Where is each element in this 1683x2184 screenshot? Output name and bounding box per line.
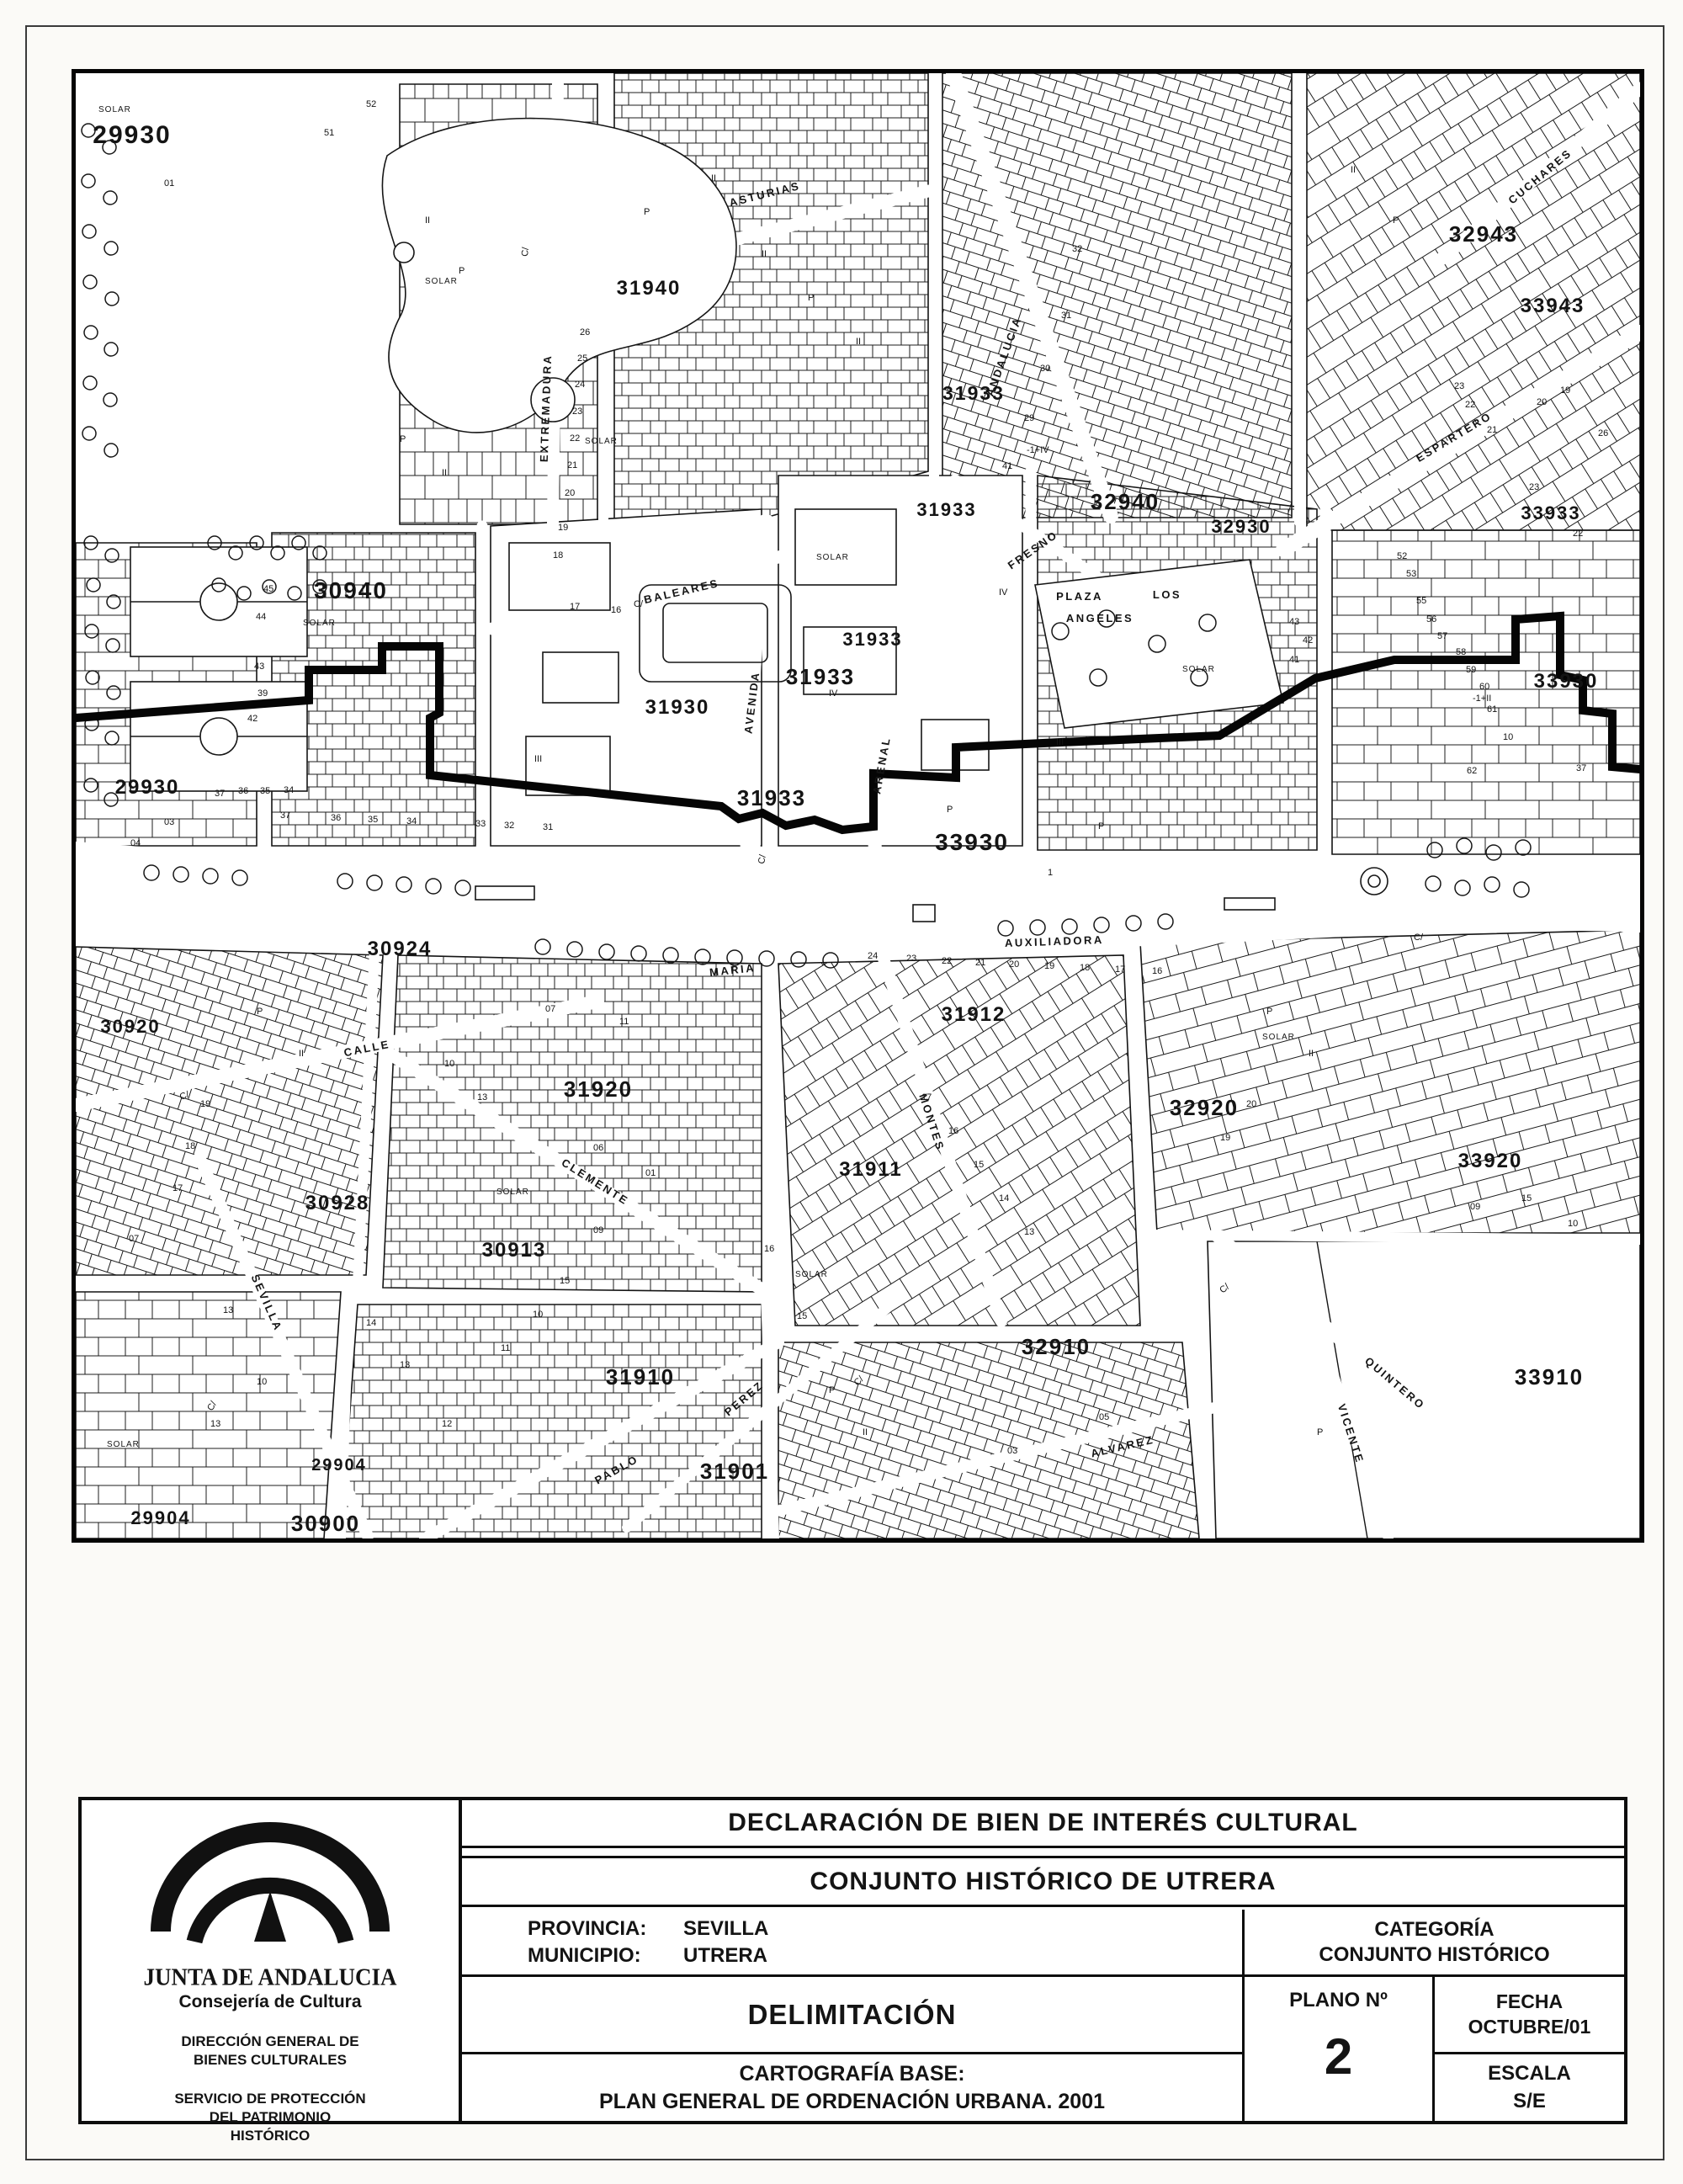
fecha-label: FECHA	[1496, 1990, 1563, 2015]
parcel-number: 31	[1061, 311, 1071, 321]
parcel-number: III	[1056, 737, 1064, 747]
parcel-number: 07	[129, 1234, 139, 1244]
delimitacion-cell: DELIMITACIÓN	[462, 1977, 1245, 2054]
street-name: LOS	[1153, 588, 1181, 601]
org-name: JUNTA DE ANDALUCIA	[82, 1963, 459, 1991]
parcel-number: 11	[619, 1017, 629, 1027]
parcel-number: 19	[1560, 385, 1570, 396]
scanned-map-sheet: 3736353433323139454443423736353403045152…	[0, 0, 1683, 2184]
parcel-number: 26	[1598, 428, 1608, 438]
parcel-number: P	[644, 207, 650, 217]
city-blocks	[76, 73, 1640, 1538]
municipio-value: UTRERA	[683, 1944, 768, 1968]
parcel-number: 10	[1503, 732, 1513, 742]
parcel-number: 20	[1537, 397, 1547, 407]
dept1-line2: BIENES CULTURALES	[194, 2052, 347, 2068]
parcel-number: 30	[1040, 364, 1050, 374]
parcel-number: 23	[1454, 381, 1464, 391]
parcel-number: 34	[406, 816, 417, 826]
parcel-number: 22	[1465, 400, 1475, 410]
parcel-number: 21	[567, 460, 577, 470]
parcel-number: II	[762, 249, 767, 259]
parcel-number: 23	[1529, 482, 1539, 492]
parcel-number: 42	[1303, 635, 1313, 646]
dept1-line1: DIRECCIÓN GENERAL DE	[181, 2033, 358, 2049]
parcel-number: 18	[1080, 963, 1090, 973]
parcel-number: 06	[593, 1143, 603, 1153]
parcel-number: 56	[1426, 614, 1436, 624]
parcel-number: 20	[1009, 959, 1019, 970]
dept2-line1: SERVICIO DE PROTECCIÓN	[174, 2091, 365, 2107]
parcel-number: 32	[1072, 244, 1082, 254]
block-number: 32920	[1170, 1095, 1239, 1120]
org-subtitle: Consejería de Cultura	[82, 1992, 459, 2012]
parcel-number: 22	[1573, 529, 1583, 539]
parcel-number: 17	[173, 1183, 183, 1193]
parcel-number: 20	[1246, 1099, 1256, 1109]
carto-line2: PLAN GENERAL DE ORDENACIÓN URBANA. 2001	[599, 2088, 1105, 2116]
plano-label: PLANO Nº	[1289, 1989, 1388, 2012]
solar-label: SOLAR	[816, 553, 849, 562]
parcel-number: 12	[442, 1419, 452, 1429]
parcel-number: 58	[1456, 647, 1466, 657]
parcel-number: P	[808, 293, 814, 303]
parcel-number: 19	[200, 1099, 210, 1109]
street-prefix: C/	[1414, 933, 1424, 943]
parcel-number: 61	[1487, 704, 1497, 715]
parcel-number: 09	[1470, 1202, 1480, 1212]
parcel-number: IV	[999, 587, 1008, 598]
parcel-number: 37	[1576, 763, 1586, 773]
parcel-number: 32	[504, 821, 514, 831]
solar-label: SOLAR	[795, 1270, 828, 1279]
parcel-number: 35	[260, 786, 270, 796]
fecha-value: OCTUBRE/01	[1468, 2015, 1591, 2040]
street-name: ANGELES	[1066, 612, 1134, 624]
parcel-number: 13	[223, 1305, 233, 1315]
parcel-number: 10	[444, 1059, 454, 1069]
parcel-number: 16	[948, 1126, 958, 1136]
parcel-number: 57	[1437, 631, 1447, 641]
block-number: 31912	[942, 1003, 1006, 1026]
double-rule	[462, 1851, 1624, 1858]
parcel-number: 13	[477, 1092, 487, 1103]
parcel-number: 26	[580, 327, 590, 337]
org-dept-1: DIRECCIÓN GENERAL DE BIENES CULTURALES	[82, 2033, 459, 2070]
parcel-number: 25	[577, 353, 587, 364]
parcel-number: 19	[1220, 1133, 1230, 1143]
fecha-cell: FECHA OCTUBRE/01	[1435, 1977, 1624, 2054]
parcel-number: 04	[130, 838, 141, 848]
solar-label: SOLAR	[303, 619, 336, 628]
parcel-number: 17	[570, 602, 580, 612]
solar-label: SOLAR	[496, 1188, 529, 1197]
parcel-number: -1+IV	[1027, 445, 1049, 455]
provincia-value: SEVILLA	[683, 1917, 768, 1941]
provincia-municipio-cell: PROVINCIA: SEVILLA MUNICIPIO: UTRERA	[462, 1910, 1245, 1977]
parcel-number: 19	[558, 523, 568, 533]
parcel-number: 10	[257, 1377, 267, 1387]
parcel-number: 51	[324, 128, 334, 138]
block-number: 33910	[1515, 1364, 1584, 1390]
parcel-number: 16	[764, 1244, 774, 1254]
parcel-number: 62	[1467, 766, 1477, 776]
escala-value: S/E	[1513, 2088, 1546, 2115]
parcel-number: 15	[560, 1276, 570, 1286]
block-number: 29930	[115, 776, 180, 799]
block-number: 33930	[935, 829, 1009, 855]
parcel-number: 52	[1397, 551, 1407, 561]
parcel-number: 23	[572, 407, 582, 417]
parcel-number: 20	[565, 488, 575, 498]
parcel-number: P	[459, 266, 465, 276]
parcel-number: 44	[256, 612, 266, 622]
block-number: 29904	[311, 1456, 367, 1475]
parcel-number: II	[425, 215, 430, 226]
parcel-number: 15	[974, 1160, 984, 1170]
block-number: 30940	[314, 577, 388, 603]
block-number: 32943	[1449, 221, 1518, 247]
parcel-number: 19	[1044, 961, 1054, 971]
parcel-number: 31	[543, 822, 553, 832]
parcel-number: 23	[906, 954, 916, 964]
parcel-number: 60	[1479, 682, 1489, 692]
parcel-number: 13	[400, 1360, 410, 1370]
parcel-number: 53	[1406, 569, 1416, 579]
block-number: 31933	[786, 664, 855, 689]
parcel-number: II	[299, 1049, 304, 1059]
parcel-number: III	[534, 754, 542, 764]
parcel-number: 59	[1466, 665, 1476, 675]
block-number: 31933	[842, 629, 902, 650]
parcel-number: 21	[1487, 425, 1497, 435]
parcel-number: P	[1317, 1427, 1323, 1437]
block-number: 30920	[100, 1016, 160, 1037]
block-number: 32930	[1211, 516, 1271, 537]
parcel-number: 16	[611, 605, 621, 615]
dept2-line3: HISTÓRICO	[231, 2128, 310, 2144]
parcel-number: 07	[545, 1004, 555, 1014]
block-number: 29904	[130, 1507, 190, 1528]
parcel-number: P	[829, 1385, 835, 1395]
parcel-number: 36	[331, 813, 341, 823]
provincia-label: PROVINCIA:	[528, 1917, 683, 1941]
parcel-number: 03	[164, 817, 174, 827]
parcel-number: 01	[645, 1168, 656, 1178]
solar-label: SOLAR	[1182, 665, 1215, 674]
parcel-number: P	[1098, 821, 1104, 832]
block-number: 32940	[1091, 489, 1160, 514]
solar-label: SOLAR	[425, 277, 458, 286]
parcel-number: 15	[797, 1311, 807, 1321]
block-number: 31911	[839, 1158, 902, 1181]
block-number: 33920	[1458, 1150, 1523, 1172]
parcel-number: II	[863, 1427, 868, 1437]
categoria-cell: CATEGORÍA CONJUNTO HISTÓRICO	[1245, 1910, 1624, 1977]
parcel-number: 52	[366, 99, 376, 109]
parcel-number: II	[711, 173, 716, 183]
parcel-number: 37	[215, 789, 225, 799]
solar-label: SOLAR	[585, 437, 618, 446]
parcel-number: 35	[368, 815, 378, 825]
block-number: 31933	[737, 785, 806, 810]
parcel-number: 1	[1048, 868, 1053, 878]
parcel-number: -1+II	[1473, 693, 1491, 704]
parcel-number: II	[856, 337, 861, 347]
categoria-value: CONJUNTO HISTÓRICO	[1319, 1942, 1549, 1968]
parcel-number: 45	[263, 584, 273, 594]
parcel-number: 16	[1152, 966, 1162, 976]
parcel-number: P	[400, 434, 406, 444]
parcel-number: 03	[1007, 1446, 1017, 1456]
parcel-number: 24	[868, 951, 878, 961]
parcel-number: 34	[284, 785, 294, 795]
parcel-number: 05	[1099, 1412, 1109, 1422]
street-prefix: C/	[634, 599, 644, 609]
categoria-label: CATEGORÍA	[1374, 1917, 1494, 1942]
block-number: 33933	[1521, 502, 1580, 523]
block-number: 30924	[368, 938, 433, 960]
parcel-number: 10	[1568, 1219, 1578, 1229]
parcel-number: P	[1266, 1007, 1272, 1017]
parcel-number: 41	[1002, 461, 1012, 471]
parcel-number: 22	[570, 433, 580, 444]
street-prefix: C/	[520, 246, 531, 257]
parcel-number: 43	[254, 662, 264, 672]
parcel-number: 39	[257, 688, 268, 699]
plano-cell: PLANO Nº 2	[1245, 1977, 1435, 2124]
parcel-number: 01	[164, 178, 174, 189]
parcel-number: 13	[1024, 1227, 1034, 1237]
plano-number: 2	[1325, 2027, 1352, 2086]
logo-cell: JUNTA DE ANDALUCIA Consejería de Cultura…	[82, 1800, 462, 2121]
parcel-number: 33	[475, 819, 486, 829]
parcel-number: 18	[185, 1141, 195, 1151]
parcel-number: 17	[1115, 964, 1125, 975]
block-number: 31930	[645, 696, 710, 719]
document-title: DECLARACIÓN DE BIEN DE INTERÉS CULTURAL	[462, 1800, 1624, 1848]
parcel-number: 18	[553, 550, 563, 561]
block-number: 31901	[700, 1459, 769, 1484]
block-number: 31933	[942, 382, 1005, 404]
cartografia-cell: CARTOGRAFÍA BASE: PLAN GENERAL DE ORDENA…	[462, 2054, 1245, 2121]
municipio-label: MUNICIPIO:	[528, 1944, 683, 1968]
parcel-number: 15	[1521, 1193, 1532, 1204]
title-block-fields: DECLARACIÓN DE BIEN DE INTERÉS CULTURAL …	[462, 1800, 1624, 2121]
block-number: 30913	[482, 1239, 547, 1262]
parcel-number: II	[1309, 1049, 1314, 1059]
solar-label: SOLAR	[107, 1440, 140, 1449]
block-number: 32910	[1022, 1334, 1091, 1359]
map-frame: 3736353433323139454443423736353403045152…	[72, 69, 1644, 1543]
dept2-line2: DEL PATRIMONIO	[210, 2109, 332, 2125]
block-number: 31920	[564, 1076, 633, 1102]
parcel-number: 14	[366, 1318, 376, 1328]
parcel-number: 37	[280, 810, 290, 821]
parcel-number: 09	[593, 1225, 603, 1235]
parcel-number: 42	[247, 714, 257, 724]
solar-label: SOLAR	[1262, 1033, 1295, 1042]
escala-label: ESCALA	[1488, 2060, 1571, 2087]
block-number: 31940	[617, 277, 682, 300]
parcel-number: II	[1351, 165, 1356, 175]
escala-cell: ESCALA S/E	[1435, 2054, 1624, 2121]
parcel-number: P	[947, 805, 953, 815]
parcel-number: II	[442, 468, 447, 478]
parcel-number: P	[257, 1007, 263, 1017]
parcel-number: 29	[1024, 413, 1034, 423]
parcel-number: 36	[238, 786, 248, 796]
parcel-number: 21	[975, 958, 985, 968]
parcel-number: 24	[575, 380, 585, 390]
parcel-number: 13	[210, 1419, 220, 1429]
street-name: PLAZA	[1056, 590, 1103, 603]
block-number: 31933	[916, 499, 976, 520]
block-number: 33930	[1534, 670, 1599, 693]
parcel-number: 43	[1289, 617, 1299, 627]
parcel-number: 14	[999, 1193, 1009, 1204]
parcel-number: 55	[1416, 596, 1426, 606]
title-block: JUNTA DE ANDALUCIA Consejería de Cultura…	[78, 1797, 1627, 2124]
parcel-number: 41	[1289, 655, 1299, 665]
block-number: 33943	[1521, 295, 1585, 317]
block-number: 30900	[291, 1511, 360, 1536]
ensemble-title: CONJUNTO HISTÓRICO DE UTRERA	[462, 1858, 1624, 1907]
cadastral-map: 3736353433323139454443423736353403045152…	[76, 73, 1640, 1538]
parcel-number: IV	[829, 688, 838, 699]
parcel-number: 22	[942, 956, 952, 966]
block-number: 31910	[606, 1364, 675, 1390]
parcel-number: P	[1393, 215, 1399, 226]
solar-label: SOLAR	[98, 105, 131, 114]
junta-de-andalucia-logo-icon	[144, 1814, 396, 1957]
org-dept-2: SERVICIO DE PROTECCIÓN DEL PATRIMONIO HI…	[82, 2090, 459, 2145]
block-number: 29930	[93, 121, 171, 149]
parcel-number: 10	[533, 1310, 543, 1320]
parcel-number: 11	[501, 1343, 510, 1353]
block-number: 30928	[305, 1192, 370, 1214]
street-prefix: C/	[757, 853, 768, 865]
carto-line1: CARTOGRAFÍA BASE:	[739, 2060, 964, 2088]
